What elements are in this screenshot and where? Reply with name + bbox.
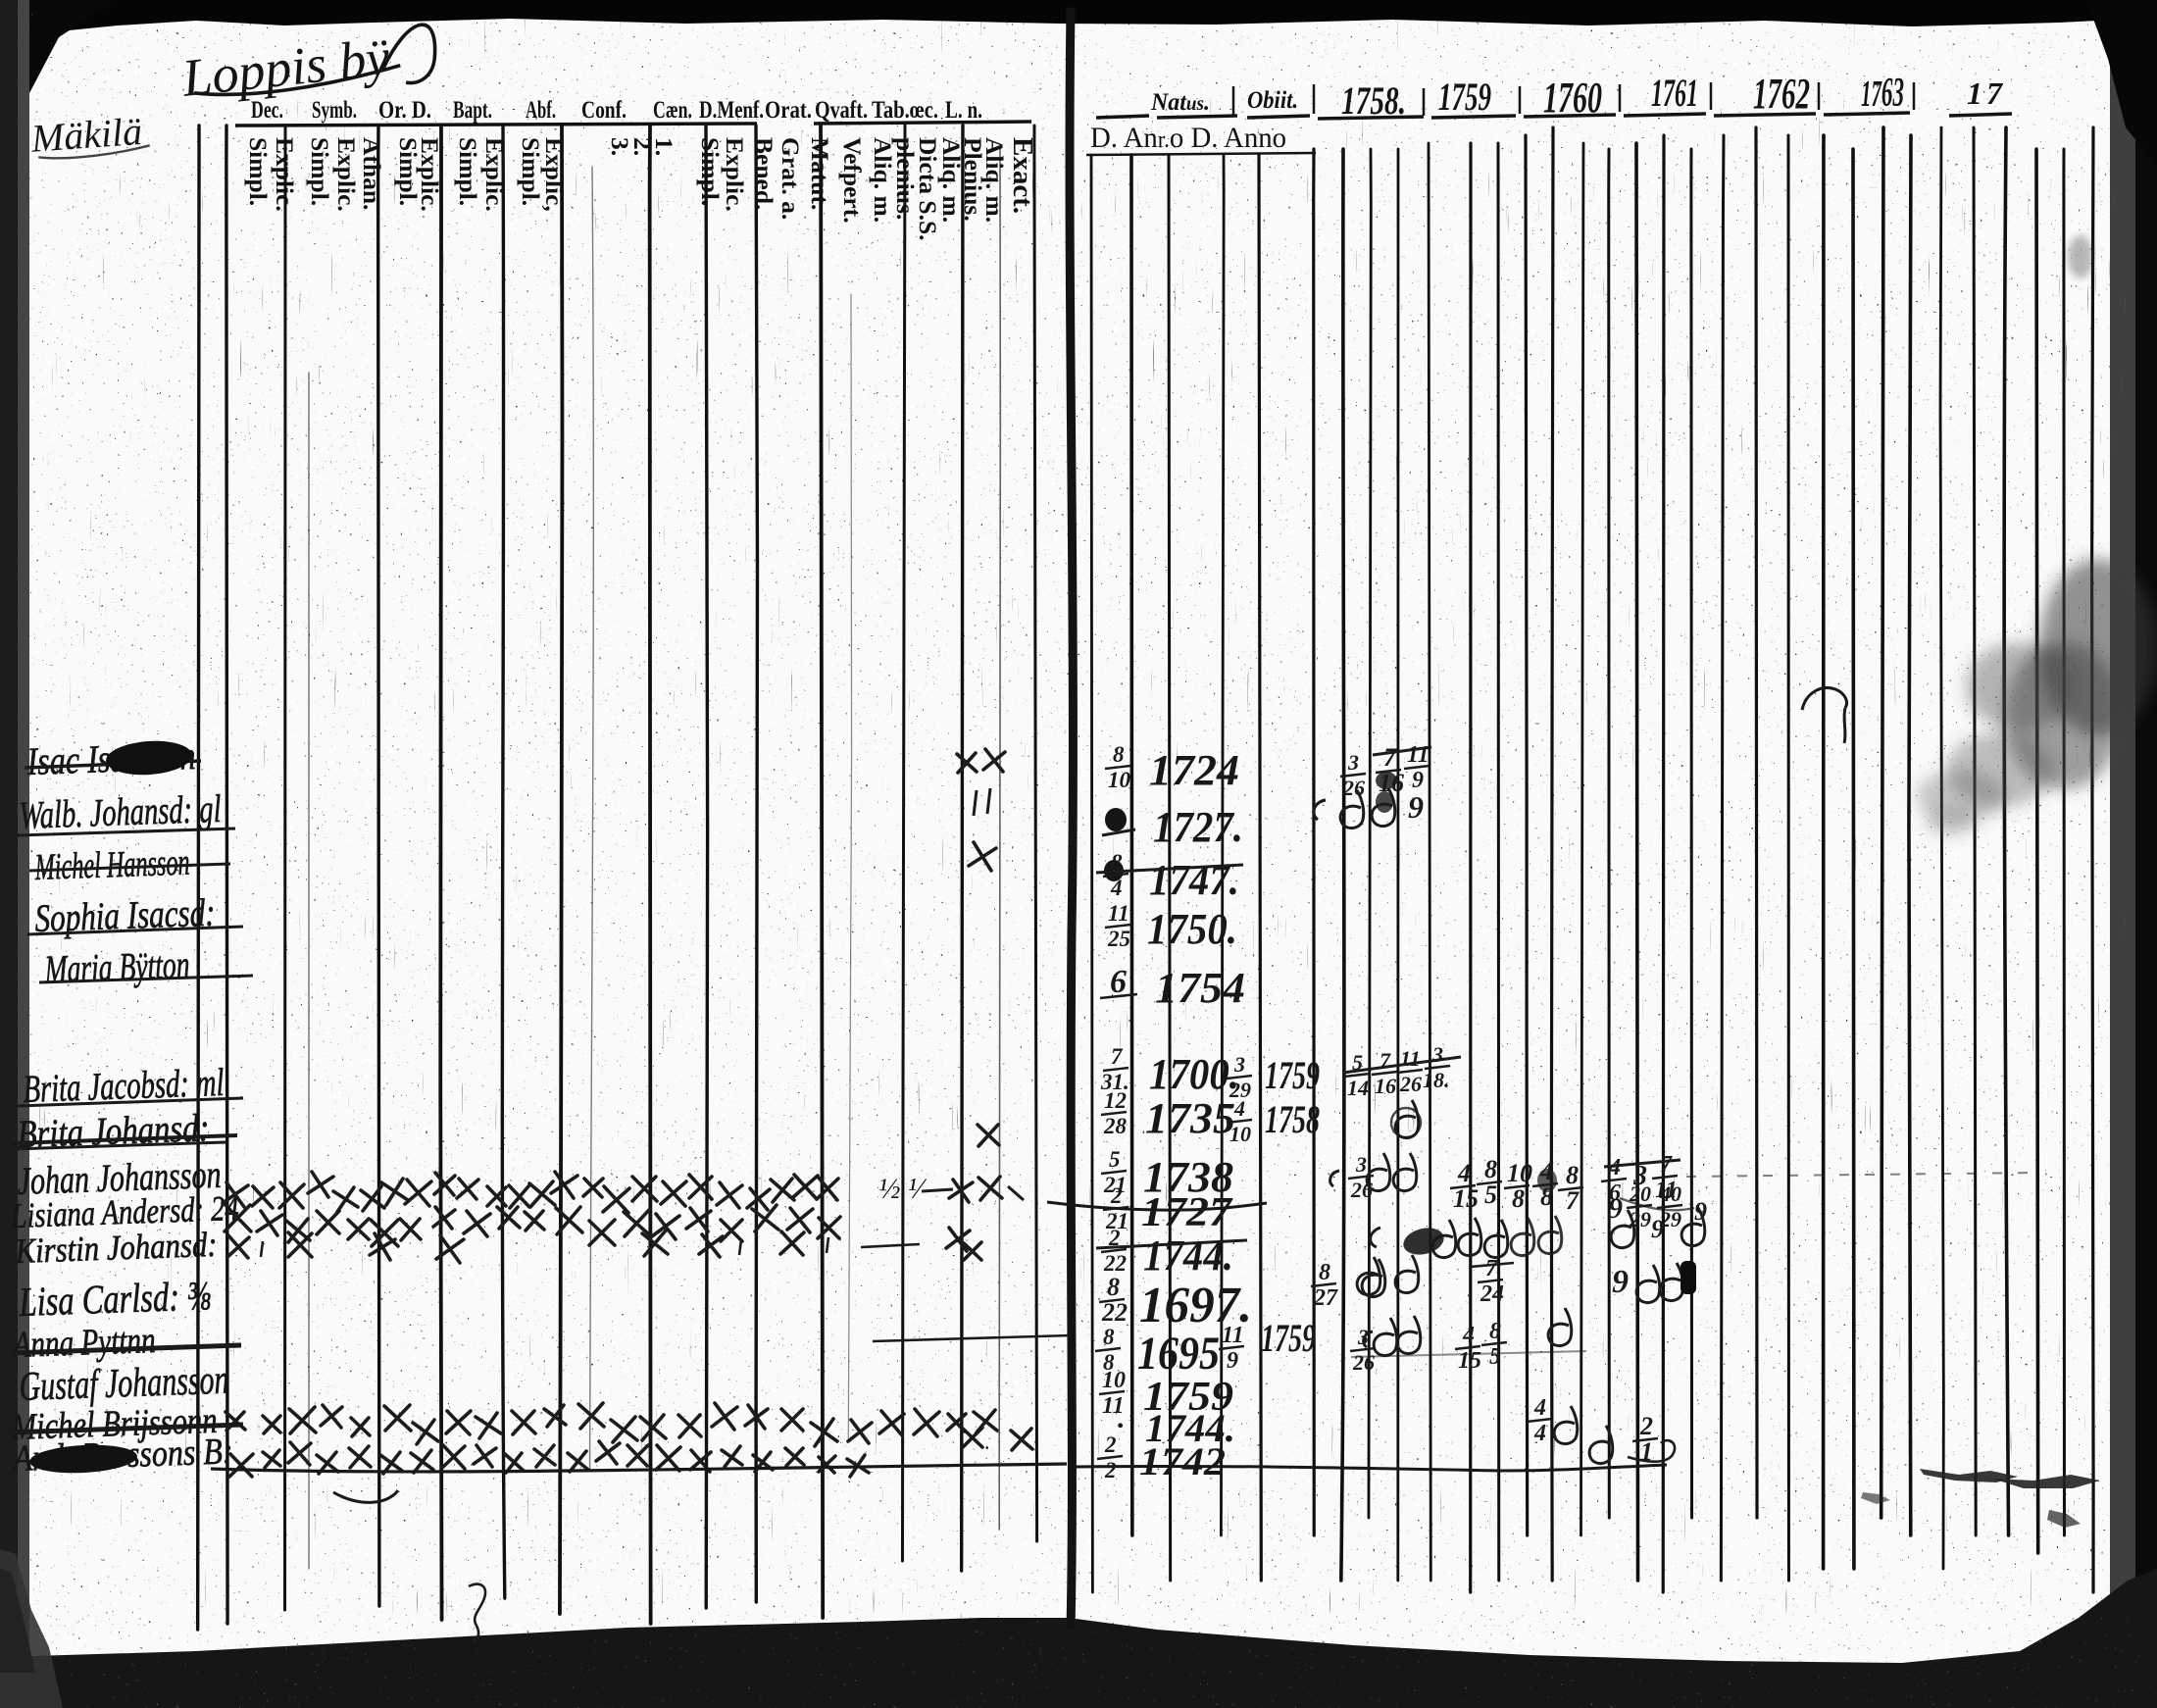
svg-text:8: 8 [1512, 1184, 1525, 1213]
svg-text:16: 16 [1375, 1074, 1396, 1098]
svg-text:8: 8 [1113, 742, 1125, 767]
svg-text:40: 40 [1659, 1181, 1681, 1206]
svg-text:Simpl.: Simpl. [306, 137, 334, 206]
svg-text:1744.: 1744. [1143, 1231, 1233, 1280]
svg-text:Exact.: Exact. [1007, 137, 1038, 214]
svg-text:26: 26 [1352, 1350, 1375, 1375]
svg-text:9: 9 [1408, 789, 1424, 825]
svg-text:5: 5 [1484, 1181, 1497, 1209]
svg-text:15: 15 [1458, 1348, 1481, 1374]
svg-text:L. n.: L. n. [945, 97, 982, 124]
svg-text:Mäkilä: Mäkilä [28, 109, 143, 161]
svg-text:7: 7 [1383, 743, 1397, 772]
svg-text:Kirstin Johansd:: Kirstin Johansd: [14, 1225, 218, 1271]
svg-text:Natus.: Natus. [1150, 89, 1210, 116]
svg-text:1747.: 1747. [1149, 856, 1239, 904]
svg-text:8: 8 [1103, 1325, 1115, 1349]
svg-text:2: 2 [1110, 1183, 1123, 1208]
svg-text:Cæn.: Cæn. [653, 97, 692, 124]
svg-text:Conf.: Conf. [581, 97, 627, 124]
svg-text:5: 5 [1109, 1147, 1121, 1172]
svg-text:10: 10 [1229, 1122, 1251, 1146]
svg-text:27: 27 [1313, 1285, 1338, 1311]
svg-text:1758: 1758 [1265, 1097, 1320, 1141]
svg-text:26: 26 [1399, 1072, 1422, 1096]
svg-text:17: 17 [1967, 75, 2006, 111]
svg-text:D. Anr.o D. Anno: D. Anr.o D. Anno [1090, 122, 1286, 154]
svg-text:½ ¹⁄: ½ ¹⁄ [878, 1173, 928, 1205]
svg-text:Explic.: Explic. [416, 137, 444, 212]
svg-text:Aliq. m.: Aliq. m. [980, 137, 1009, 223]
svg-text:4: 4 [1457, 1159, 1471, 1187]
svg-text:3: 3 [1355, 1152, 1367, 1177]
svg-text:Orat.: Orat. [765, 97, 812, 124]
svg-text:Simpl.: Simpl. [244, 137, 273, 206]
svg-text:2: 2 [1104, 1458, 1117, 1482]
svg-text:1750.: 1750. [1147, 905, 1237, 953]
svg-text:3: 3 [1347, 750, 1359, 775]
svg-text:Qvaft.: Qvaft. [815, 97, 868, 124]
svg-text:Simpl.: Simpl. [454, 137, 482, 206]
svg-text:28: 28 [1103, 1114, 1128, 1138]
svg-text:9: 9 [1227, 1348, 1238, 1374]
svg-text:1763: 1763 [1861, 71, 1904, 116]
svg-text:5: 5 [1489, 1344, 1501, 1370]
svg-text:Anna Pyttnn: Anna Pyttnn [11, 1320, 157, 1366]
svg-text:4: 4 [1533, 1421, 1546, 1446]
svg-text:8: 8 [1319, 1260, 1330, 1285]
svg-text:4: 4 [1462, 1323, 1475, 1348]
svg-text:Simpl.: Simpl. [696, 137, 725, 206]
svg-text:1754: 1754 [1155, 964, 1245, 1012]
svg-text:18.: 18. [1423, 1068, 1450, 1092]
svg-text:2: 2 [1639, 1412, 1653, 1440]
svg-text:.: . [984, 1430, 990, 1454]
svg-text:Bened.: Bened. [750, 137, 778, 210]
svg-text:Explic.: Explic. [332, 137, 361, 212]
svg-text:9: 9 [1612, 1264, 1629, 1300]
svg-text:1727: 1727 [1141, 1190, 1233, 1235]
svg-text:1759: 1759 [1261, 1316, 1316, 1360]
svg-text:4: 4 [1110, 876, 1123, 900]
svg-text:1727.: 1727. [1153, 803, 1243, 851]
svg-text:Abf.: Abf. [526, 97, 556, 124]
svg-text:Or. D.: Or. D. [378, 97, 431, 124]
svg-text:.: . [1118, 1402, 1126, 1434]
svg-text:25: 25 [1107, 927, 1130, 951]
svg-text:4: 4 [1233, 1096, 1245, 1121]
svg-text:Dec.: Dec. [251, 97, 283, 124]
svg-text:9: 9 [1651, 1215, 1664, 1243]
svg-text:7: 7 [1485, 1256, 1498, 1281]
svg-text:3: 3 [1233, 1052, 1245, 1077]
svg-text:1700.: 1700. [1149, 1050, 1239, 1098]
svg-text:Maria Bÿtton: Maria Bÿtton [43, 942, 190, 991]
svg-text:D.Menf.: D.Menf. [699, 97, 764, 124]
svg-text:Obiit.: Obiit. [1247, 87, 1298, 114]
svg-text:Grat. a.: Grat. a. [777, 137, 805, 220]
svg-text:Explic.: Explic. [721, 137, 749, 212]
svg-text:.: . [1033, 1432, 1039, 1456]
svg-text:14: 14 [1347, 1076, 1369, 1100]
svg-text:11: 11 [1407, 742, 1430, 768]
svg-text:Vefpert.: Vefpert. [838, 137, 867, 224]
svg-text:7: 7 [1566, 1186, 1580, 1215]
svg-text:12: 12 [1104, 1088, 1127, 1113]
svg-text:24: 24 [1480, 1281, 1504, 1307]
svg-text:1.: 1. [650, 137, 678, 156]
svg-text:3: 3 [1431, 1042, 1443, 1067]
svg-text:Athan.: Athan. [358, 137, 386, 210]
svg-text:2: 2 [1104, 1432, 1117, 1457]
svg-text:9: 9 [1608, 1192, 1623, 1225]
svg-text:1762: 1762 [1753, 70, 1810, 118]
svg-text:11: 11 [1108, 901, 1129, 926]
svg-text:4: 4 [1608, 1155, 1621, 1181]
svg-text:Bapt.: Bapt. [453, 97, 492, 124]
svg-text:3: 3 [1357, 1325, 1369, 1349]
svg-text:8: 8 [1489, 1319, 1501, 1344]
svg-text:Tab.œc.: Tab.œc. [872, 97, 938, 124]
svg-text:10: 10 [1102, 1368, 1126, 1393]
svg-text:Explic.: Explic. [271, 137, 299, 212]
svg-text:1742: 1742 [1139, 1439, 1226, 1483]
svg-text:10: 10 [1507, 1159, 1532, 1187]
svg-text:Lisa Carlsd: ⅜: Lisa Carlsd: ⅜ [18, 1274, 212, 1326]
svg-text:1761: 1761 [1651, 71, 1698, 115]
svg-text:1759: 1759 [1438, 75, 1491, 119]
svg-text:8: 8 [1566, 1161, 1579, 1189]
svg-text:Symb.: Symb. [312, 97, 357, 124]
svg-text:11: 11 [1400, 1046, 1421, 1071]
svg-text:8: 8 [1107, 1273, 1120, 1301]
svg-text:7: 7 [1660, 1152, 1673, 1178]
svg-text:1724: 1724 [1149, 746, 1239, 794]
svg-text:1695: 1695 [1137, 1328, 1220, 1380]
svg-text:8: 8 [1484, 1155, 1497, 1183]
svg-text:7: 7 [1111, 1044, 1124, 1069]
svg-text:26: 26 [1350, 1178, 1373, 1202]
svg-text:11: 11 [1222, 1323, 1244, 1348]
svg-text:Explic,: Explic, [540, 137, 569, 212]
svg-text:1759: 1759 [1265, 1053, 1320, 1097]
svg-text:4: 4 [1533, 1395, 1546, 1421]
svg-text:Matut.: Matut. [806, 137, 834, 210]
svg-text:10: 10 [1108, 768, 1131, 792]
svg-text:1735: 1735 [1145, 1094, 1235, 1142]
svg-text:Explic.: Explic. [480, 137, 509, 212]
